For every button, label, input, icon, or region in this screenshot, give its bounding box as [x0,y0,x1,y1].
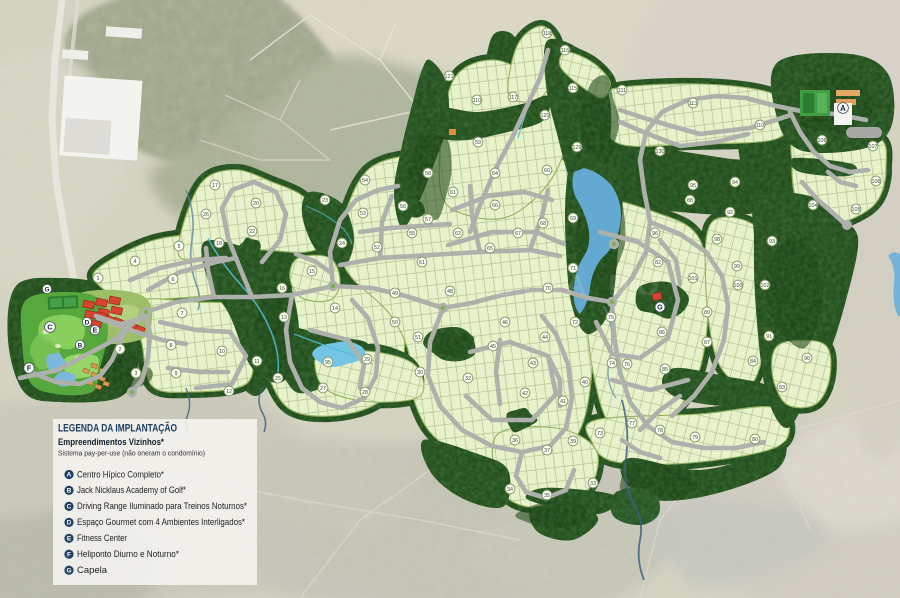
svg-text:29: 29 [364,357,370,363]
svg-text:14: 14 [332,306,338,312]
svg-text:Jack Nicklaus Academy of Golf*: Jack Nicklaus Academy of Golf* [77,485,186,495]
svg-text:50: 50 [392,320,398,326]
svg-text:13: 13 [281,315,287,321]
svg-text:116: 116 [561,48,570,54]
svg-text:LEGENDA DA IMPLANTAÇÃO: LEGENDA DA IMPLANTAÇÃO [58,422,177,435]
svg-text:F: F [67,551,71,558]
svg-text:3: 3 [135,371,138,377]
svg-text:93: 93 [769,239,775,245]
svg-text:94: 94 [732,180,738,186]
svg-text:68: 68 [540,221,546,227]
svg-text:111: 111 [618,88,626,94]
svg-text:90: 90 [804,356,810,362]
svg-text:39: 39 [570,439,576,445]
svg-text:53: 53 [360,211,366,217]
svg-text:95: 95 [325,360,331,366]
svg-text:49: 49 [392,291,398,297]
svg-text:Driving Range Iluminado para T: Driving Range Iluminado para Treinos Not… [77,501,247,511]
svg-text:16: 16 [279,286,285,292]
svg-text:71: 71 [570,266,576,272]
svg-text:117: 117 [509,95,518,101]
svg-text:62: 62 [455,231,461,237]
svg-text:61: 61 [419,260,425,266]
svg-text:33: 33 [590,481,596,487]
svg-text:26: 26 [203,212,209,218]
svg-text:73: 73 [597,431,603,437]
svg-text:Espaço Gourmet com 4 Ambientes: Espaço Gourmet com 4 Ambientes Interliga… [77,517,245,527]
svg-text:88: 88 [687,198,693,204]
svg-text:70: 70 [545,286,551,292]
svg-text:25: 25 [275,376,281,382]
svg-text:84: 84 [750,359,756,365]
svg-text:1: 1 [97,276,100,282]
svg-text:11: 11 [254,359,260,365]
svg-text:83: 83 [779,385,785,391]
svg-text:42: 42 [522,391,528,397]
svg-text:23: 23 [322,198,328,204]
svg-text:Heliponto Diurno e Noturno*: Heliponto Diurno e Noturno* [77,549,179,559]
svg-text:69: 69 [570,216,576,222]
svg-text:40: 40 [582,380,588,386]
svg-text:B: B [78,342,83,349]
svg-text:E: E [93,328,98,335]
svg-text:17: 17 [212,183,218,189]
svg-text:106: 106 [872,179,881,185]
svg-text:10: 10 [219,349,225,355]
svg-text:Capela: Capela [77,565,107,575]
svg-text:7: 7 [181,311,184,317]
svg-text:G: G [66,567,71,574]
svg-text:48: 48 [447,289,453,295]
svg-text:54: 54 [362,178,368,184]
svg-text:100: 100 [734,283,743,289]
svg-text:12: 12 [226,389,232,395]
svg-text:D: D [85,319,90,326]
svg-text:101: 101 [689,276,698,282]
svg-text:92: 92 [727,210,733,216]
svg-text:74: 74 [609,361,615,367]
svg-text:8: 8 [170,343,173,349]
svg-text:Fitness Center: Fitness Center [77,533,127,543]
svg-text:37: 37 [544,448,550,454]
svg-text:79: 79 [692,435,698,441]
svg-text:32: 32 [465,376,471,382]
svg-text:Sistema pay-per-use (não onera: Sistema pay-per-use (não oneram o condom… [58,448,205,457]
svg-text:30: 30 [417,370,423,376]
svg-text:55: 55 [409,231,415,237]
svg-text:95: 95 [690,183,696,189]
svg-text:107: 107 [869,144,878,150]
svg-text:52: 52 [374,245,380,251]
svg-text:104: 104 [809,203,818,209]
svg-text:91: 91 [766,334,772,340]
svg-text:115: 115 [569,86,578,92]
svg-text:28: 28 [362,390,368,396]
svg-text:102: 102 [761,283,770,289]
svg-text:85: 85 [662,367,668,373]
svg-text:75: 75 [608,315,614,321]
svg-text:57: 57 [425,217,431,223]
svg-text:46: 46 [502,320,508,326]
svg-text:80: 80 [752,437,758,443]
svg-text:6: 6 [172,277,175,283]
svg-text:5: 5 [178,244,181,250]
svg-text:D: D [67,520,72,527]
svg-text:Empreendimentos Vizinhos*: Empreendimentos Vizinhos* [58,436,164,447]
svg-text:22: 22 [249,229,255,235]
svg-text:A: A [67,472,72,479]
svg-text:113: 113 [689,101,698,107]
svg-text:F: F [27,364,32,373]
svg-text:130: 130 [656,149,665,155]
svg-text:121: 121 [445,74,454,80]
svg-text:82: 82 [655,260,661,266]
svg-text:60: 60 [544,168,550,174]
svg-text:86: 86 [659,330,665,336]
svg-text:98: 98 [714,237,720,243]
svg-text:G: G [657,305,663,312]
svg-text:89: 89 [704,310,710,316]
svg-text:4: 4 [134,259,137,265]
svg-text:51: 51 [415,335,421,341]
svg-text:120: 120 [541,113,550,119]
svg-text:78: 78 [657,428,663,434]
svg-text:87: 87 [704,340,710,346]
svg-text:118: 118 [543,31,552,37]
svg-text:61: 61 [450,190,456,196]
svg-text:20: 20 [253,201,259,207]
svg-text:66: 66 [492,203,498,209]
svg-text:76: 76 [624,362,630,368]
svg-text:44: 44 [542,335,548,341]
svg-text:99: 99 [734,264,740,270]
svg-text:43: 43 [530,361,536,367]
svg-text:24: 24 [339,241,345,247]
svg-text:96: 96 [652,231,658,237]
svg-text:77: 77 [629,421,635,427]
svg-text:35: 35 [544,493,550,499]
svg-text:9: 9 [175,371,178,377]
svg-text:36: 36 [512,438,518,444]
svg-text:56: 56 [400,204,406,210]
svg-text:ALDEIA DO: ALDEIA DO [440,269,667,302]
svg-text:72: 72 [572,320,578,326]
svg-text:B: B [67,488,72,495]
svg-text:129: 129 [573,145,582,151]
svg-text:15: 15 [309,269,315,275]
svg-text:105: 105 [852,207,861,213]
svg-text:G: G [44,286,49,293]
svg-text:45: 45 [490,344,496,350]
svg-text:65: 65 [487,246,493,252]
svg-text:27: 27 [320,386,326,392]
svg-text:108: 108 [818,138,827,144]
svg-text:67: 67 [515,231,521,237]
svg-text:18: 18 [216,241,222,247]
svg-text:59: 59 [475,140,481,146]
svg-text:110: 110 [756,123,765,129]
svg-text:34: 34 [507,487,513,493]
svg-text:E: E [67,536,72,543]
svg-text:A: A [840,104,846,113]
svg-text:110: 110 [473,98,482,104]
svg-text:41: 41 [560,399,566,405]
svg-text:64: 64 [492,171,498,177]
svg-text:58: 58 [425,171,431,177]
svg-text:2: 2 [119,347,122,353]
svg-text:Centro Hípico Completo*: Centro Hípico Completo* [77,469,164,479]
svg-text:C: C [47,323,53,332]
svg-text:C: C [67,504,72,511]
